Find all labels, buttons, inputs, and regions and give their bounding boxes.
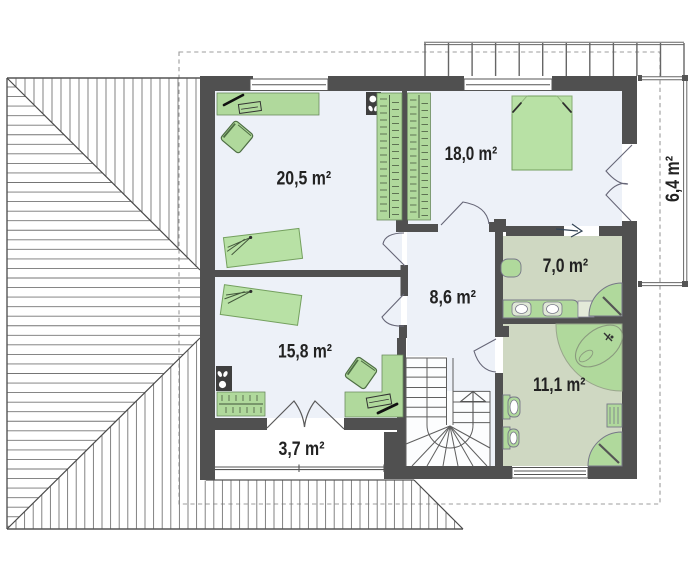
svg-text:18,0 m²: 18,0 m² xyxy=(445,144,498,165)
svg-text:11,1 m²: 11,1 m² xyxy=(533,375,586,396)
svg-text:3,7 m²: 3,7 m² xyxy=(279,439,325,460)
svg-text:8,6 m²: 8,6 m² xyxy=(430,288,477,309)
svg-text:7,0 m²: 7,0 m² xyxy=(543,256,589,277)
svg-text:6,4 m²: 6,4 m² xyxy=(663,156,684,202)
svg-text:15,8 m²: 15,8 m² xyxy=(278,342,332,363)
svg-text:20,5 m²: 20,5 m² xyxy=(277,169,332,190)
